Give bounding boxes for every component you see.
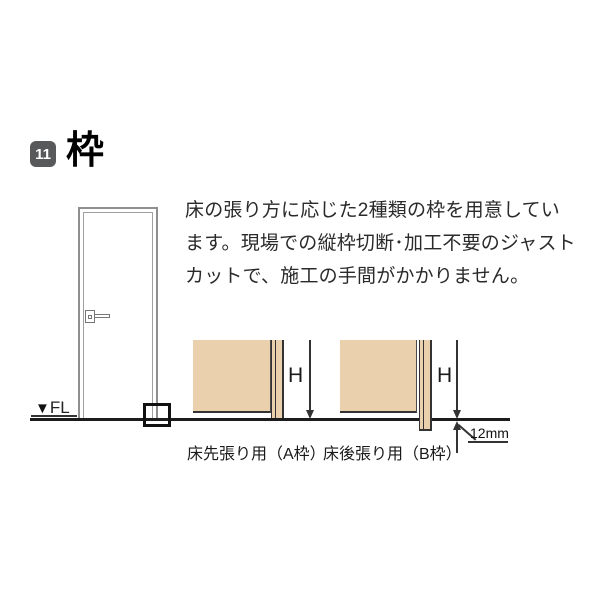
floor-level-underline (31, 415, 77, 417)
frame-jamb-a (271, 340, 284, 418)
caption-frame-b: 床後張り用（B枠） (323, 440, 462, 464)
frame-jamb-a-divider (275, 340, 276, 418)
height-dimension-line-a (309, 340, 311, 417)
frame-jamb-b (419, 340, 432, 431)
offset-leader-underline (468, 441, 508, 443)
floor-line (30, 418, 510, 421)
frame-bottom-highlight-box (143, 403, 171, 427)
height-dimension-label-b: H (437, 364, 452, 388)
page-title: 枠 (66, 130, 104, 172)
door-handle-rose (88, 315, 92, 319)
wall-section-a (193, 340, 271, 413)
catalog-page: 11 枠 床の張り方に応じた2種類の枠を用意してい ます。現場での縦枠切断･加工… (0, 0, 600, 600)
description-line-3: カットで、施工の手間がかかりません。 (185, 260, 587, 293)
section-number-badge: 11 (30, 141, 56, 167)
description-line-2: ます。現場での縦枠切断･加工不要のジャスト (185, 227, 587, 260)
door-handle-lever (94, 314, 110, 318)
description-paragraph: 床の張り方に応じた2種類の枠を用意してい ます。現場での縦枠切断･加工不要のジャ… (185, 194, 587, 293)
wall-section-b (340, 340, 417, 413)
description-line-1: 床の張り方に応じた2種類の枠を用意してい (185, 194, 587, 227)
height-dimension-label-a: H (288, 364, 303, 388)
height-dimension-line-b (456, 340, 458, 417)
offset-dimension-label: 12mm (470, 425, 509, 441)
frame-jamb-b-divider (423, 340, 424, 429)
caption-frame-a: 床先張り用（A枠） (187, 440, 326, 464)
